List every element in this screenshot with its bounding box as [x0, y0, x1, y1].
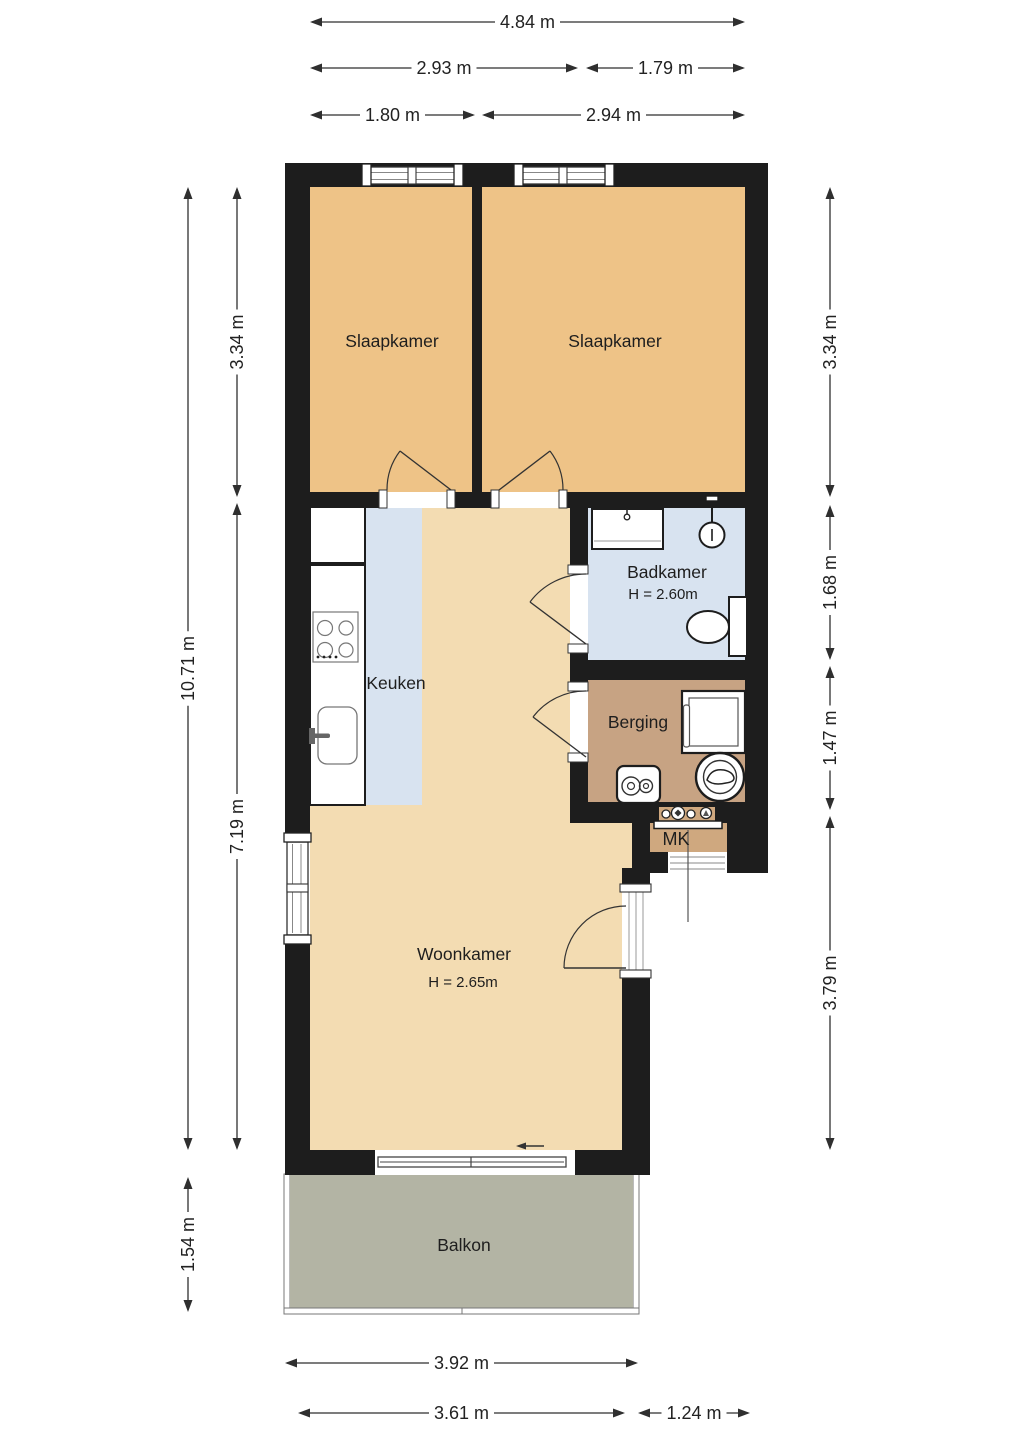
- dimension-label: 3.92 m: [434, 1353, 489, 1373]
- dimension-label: 10.71 m: [178, 636, 198, 701]
- mk-label: MK: [663, 829, 690, 849]
- wall-left-upper: [285, 187, 310, 842]
- balcony-railing-right: [633, 1174, 639, 1314]
- storage-label: Berging: [608, 712, 668, 732]
- dimension-label: 3.61 m: [434, 1403, 489, 1423]
- dimension: 1.68 m: [819, 505, 841, 660]
- balcony-label: Balkon: [437, 1235, 491, 1255]
- dimension: 1.24 m: [638, 1402, 750, 1424]
- wall-mk-right: [727, 823, 768, 873]
- entry-nook-floor: [570, 820, 632, 875]
- dimension-label: 1.68 m: [820, 555, 840, 610]
- bedroom-1-window: [362, 164, 463, 186]
- dimension-label: 1.47 m: [820, 710, 840, 765]
- dimension: 1.54 m: [177, 1177, 199, 1312]
- dimension-label: 1.80 m: [365, 105, 420, 125]
- bathroom-sink: [592, 509, 663, 549]
- dimension: 3.61 m: [298, 1402, 625, 1424]
- toilet-tank: [729, 597, 747, 656]
- dimension: 3.79 m: [819, 816, 841, 1150]
- dimension: 10.71 m: [177, 187, 199, 1150]
- dimension: 4.84 m: [310, 11, 745, 33]
- dimension: 1.80 m: [310, 104, 475, 126]
- dimension-label: 2.93 m: [416, 58, 471, 78]
- wall-bath-left-a: [570, 492, 588, 565]
- floorplan-drawing: Slaapkamer Slaapkamer Badkamer H = 2.60m…: [0, 0, 1018, 1440]
- wall-bedroom-divider: [472, 187, 482, 493]
- bedroom-2-window: [514, 164, 614, 186]
- meter-board: [654, 807, 722, 829]
- balcony-railing-left: [284, 1174, 290, 1314]
- wall-living-right-b: [622, 970, 650, 1175]
- kitchen-counter: [310, 565, 365, 805]
- dimension-label: 4.84 m: [500, 12, 555, 32]
- kitchen-label: Keuken: [366, 673, 425, 693]
- washing-machine: [682, 691, 745, 753]
- kitchen-floor: [365, 505, 422, 810]
- toilet-bowl: [687, 611, 729, 643]
- dimension-label: 7.19 m: [227, 799, 247, 854]
- wall-bath-left-b: [570, 653, 588, 682]
- dimension-label: 1.24 m: [666, 1403, 721, 1423]
- dimension: 3.34 m: [226, 187, 248, 497]
- hallway-floor: [422, 505, 570, 810]
- wall-bedrooms-bottom-c: [567, 492, 768, 508]
- bedroom-1-label: Slaapkamer: [345, 331, 439, 351]
- wall-living-bottom-b: [575, 1150, 650, 1175]
- living-room-height-label: H = 2.65m: [428, 974, 498, 991]
- dimension: 1.47 m: [819, 666, 841, 810]
- wall-living-bottom-a: [285, 1150, 375, 1175]
- dimension: 3.34 m: [819, 187, 841, 497]
- dimension: 7.19 m: [226, 503, 248, 1150]
- kitchen-cabinet: [310, 507, 365, 563]
- bathroom-label: Badkamer: [627, 562, 707, 582]
- dimension: 2.93 m: [310, 57, 578, 79]
- boiler: [617, 766, 660, 803]
- dimension-label: 1.54 m: [178, 1217, 198, 1272]
- dimension-label: 3.34 m: [227, 314, 247, 369]
- wall-bath-storage-divider: [588, 660, 745, 680]
- wall-bath-left-c: [570, 762, 588, 803]
- living-room-label: Woonkamer: [417, 944, 511, 964]
- dimension: 1.79 m: [586, 57, 745, 79]
- dimension-label: 2.94 m: [586, 105, 641, 125]
- dimension-label: 3.34 m: [820, 314, 840, 369]
- floorplan-page: Slaapkamer Slaapkamer Badkamer H = 2.60m…: [0, 0, 1018, 1440]
- bedroom-2-label: Slaapkamer: [568, 331, 662, 351]
- living-room-window: [284, 833, 311, 944]
- wall-right: [745, 163, 768, 873]
- dimension: 2.94 m: [482, 104, 745, 126]
- ventilation-unit: [696, 753, 744, 801]
- bathroom-height-label: H = 2.60m: [628, 586, 698, 603]
- dimension-label: 3.79 m: [820, 955, 840, 1010]
- dimension-label: 1.79 m: [638, 58, 693, 78]
- wall-bedrooms-bottom-b: [455, 492, 491, 508]
- wall-bedrooms-bottom-a: [285, 492, 379, 508]
- stove: [313, 612, 358, 662]
- dimension: 3.92 m: [285, 1352, 638, 1374]
- wall-left-lower: [285, 937, 310, 1175]
